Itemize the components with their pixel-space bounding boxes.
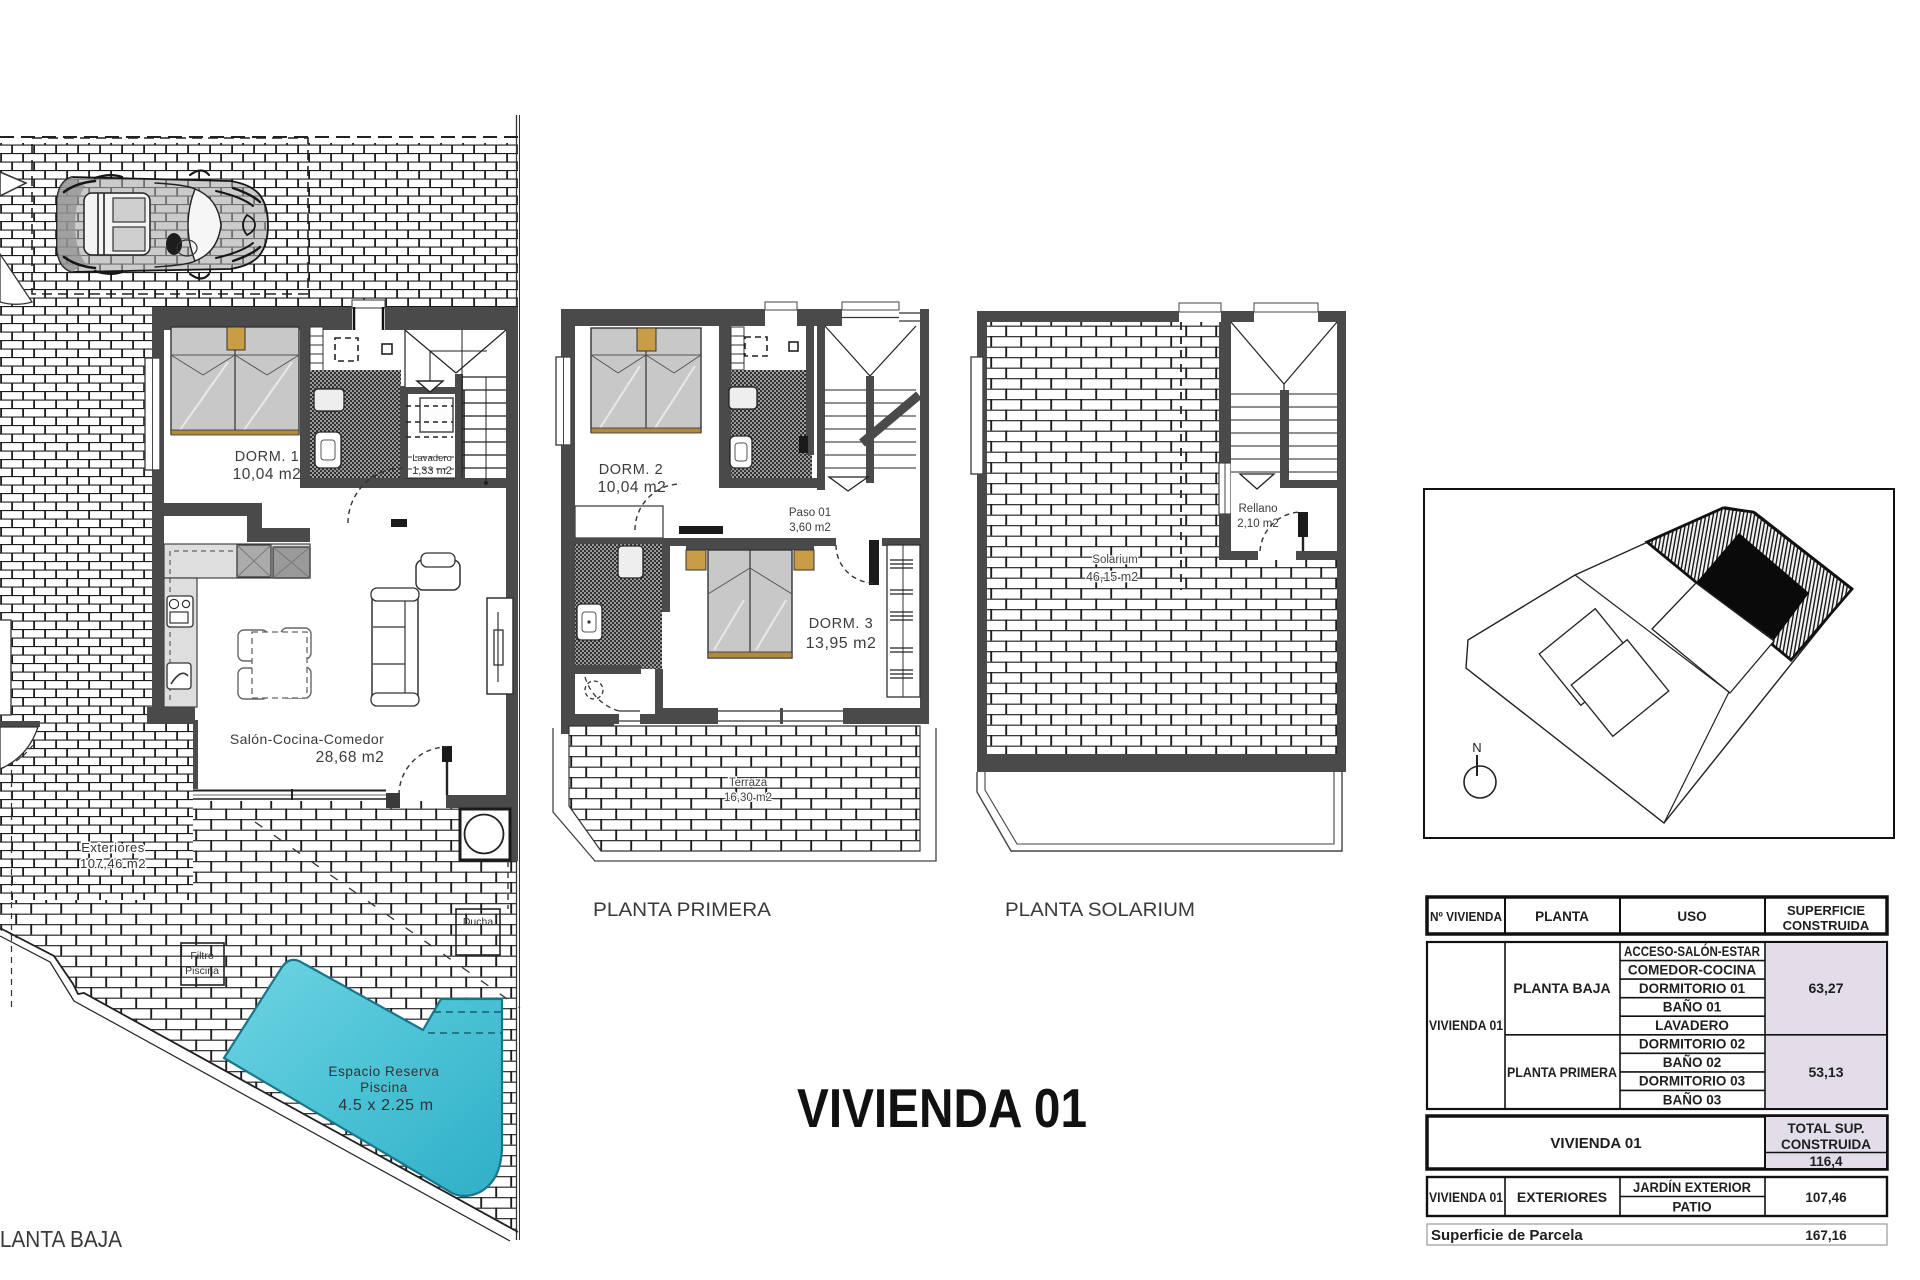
svg-text:1,33 m2: 1,33 m2 — [412, 465, 452, 477]
svg-text:28,68 m2: 28,68 m2 — [316, 749, 385, 766]
svg-text:13,95 m2: 13,95 m2 — [806, 635, 877, 652]
svg-text:Ducha: Ducha — [463, 916, 494, 928]
svg-text:N: N — [1472, 740, 1481, 755]
svg-text:PLANTA: PLANTA — [1535, 909, 1589, 924]
svg-text:VIVIENDA 01: VIVIENDA 01 — [797, 1077, 1087, 1139]
svg-text:DORMITORIO 01: DORMITORIO 01 — [1639, 981, 1746, 996]
svg-text:116,4: 116,4 — [1809, 1154, 1843, 1169]
svg-text:53,13: 53,13 — [1808, 1064, 1843, 1080]
svg-text:CONSTRUIDA: CONSTRUIDA — [1783, 918, 1870, 933]
svg-text:4.5 x 2.25 m: 4.5 x 2.25 m — [338, 1097, 433, 1114]
svg-text:DORM. 3: DORM. 3 — [809, 616, 874, 632]
svg-text:Lavadero: Lavadero — [412, 453, 452, 464]
svg-text:3,60 m2: 3,60 m2 — [789, 522, 831, 534]
svg-text:10,04 m2: 10,04 m2 — [598, 479, 667, 496]
svg-text:SUPERFICIE: SUPERFICIE — [1787, 903, 1865, 918]
svg-text:Exteriores: Exteriores — [81, 840, 145, 855]
svg-text:Solarium: Solarium — [1092, 554, 1137, 566]
svg-text:107,46 m2: 107,46 m2 — [80, 856, 146, 871]
svg-text:PLANTA BAJA: PLANTA BAJA — [1513, 980, 1610, 996]
svg-text:107,46: 107,46 — [1805, 1190, 1847, 1205]
svg-text:10,04 m2: 10,04 m2 — [233, 466, 302, 483]
svg-text:Paso 01: Paso 01 — [789, 507, 831, 519]
svg-text:Nº VIVIENDA: Nº VIVIENDA — [1430, 910, 1502, 924]
svg-text:DORMITORIO 02: DORMITORIO 02 — [1639, 1037, 1745, 1052]
svg-text:Piscina: Piscina — [360, 1080, 408, 1095]
svg-text:46,15 m2: 46,15 m2 — [1086, 570, 1138, 584]
svg-text:ACCESO-SALÓN-ESTAR: ACCESO-SALÓN-ESTAR — [1624, 944, 1760, 959]
svg-text:DORM. 1: DORM. 1 — [235, 449, 300, 465]
svg-text:Terraza: Terraza — [729, 777, 768, 789]
svg-text:PLANTA PRIMERA: PLANTA PRIMERA — [1507, 1064, 1617, 1080]
svg-text:Filtro: Filtro — [190, 950, 213, 962]
svg-text:Piscina: Piscina — [185, 965, 219, 977]
svg-text:PLANTA PRIMERA: PLANTA PRIMERA — [593, 900, 771, 921]
svg-text:63,27: 63,27 — [1808, 980, 1843, 996]
svg-text:COMEDOR-COCINA: COMEDOR-COCINA — [1628, 963, 1756, 978]
svg-text:CONSTRUIDA: CONSTRUIDA — [1781, 1137, 1871, 1152]
svg-text:BAÑO 03: BAÑO 03 — [1663, 1092, 1722, 1107]
svg-text:USO: USO — [1677, 909, 1706, 924]
svg-text:167,16: 167,16 — [1805, 1228, 1847, 1243]
svg-text:VIVIENDA 01: VIVIENDA 01 — [1550, 1135, 1641, 1152]
svg-text:VIVIENDA 01: VIVIENDA 01 — [1429, 1190, 1503, 1205]
svg-text:DORMITORIO 03: DORMITORIO 03 — [1639, 1074, 1746, 1089]
svg-text:EXTERIORES: EXTERIORES — [1517, 1189, 1607, 1205]
svg-text:16,30 m2: 16,30 m2 — [724, 792, 772, 804]
svg-text:TOTAL SUP.: TOTAL SUP. — [1787, 1121, 1864, 1136]
svg-text:DORM. 2: DORM. 2 — [599, 462, 664, 478]
svg-text:Superficie de Parcela: Superficie de Parcela — [1431, 1227, 1583, 1244]
svg-text:PLANTA SOLARIUM: PLANTA SOLARIUM — [1005, 900, 1195, 921]
svg-text:PLANTA BAJA: PLANTA BAJA — [0, 1226, 123, 1252]
svg-text:BAÑO 01: BAÑO 01 — [1663, 1000, 1722, 1015]
svg-text:Rellano: Rellano — [1239, 503, 1278, 515]
svg-text:Espacio Reserva: Espacio Reserva — [328, 1064, 439, 1079]
svg-text:LAVADERO: LAVADERO — [1655, 1018, 1729, 1033]
svg-text:BAÑO 02: BAÑO 02 — [1663, 1055, 1722, 1070]
svg-text:VIVIENDA 01: VIVIENDA 01 — [1429, 1017, 1503, 1033]
svg-text:PATIO: PATIO — [1672, 1200, 1711, 1215]
svg-text:JARDÍN EXTERIOR: JARDÍN EXTERIOR — [1633, 1180, 1751, 1195]
svg-text:Salón-Cocina-Comedor: Salón-Cocina-Comedor — [230, 731, 384, 747]
